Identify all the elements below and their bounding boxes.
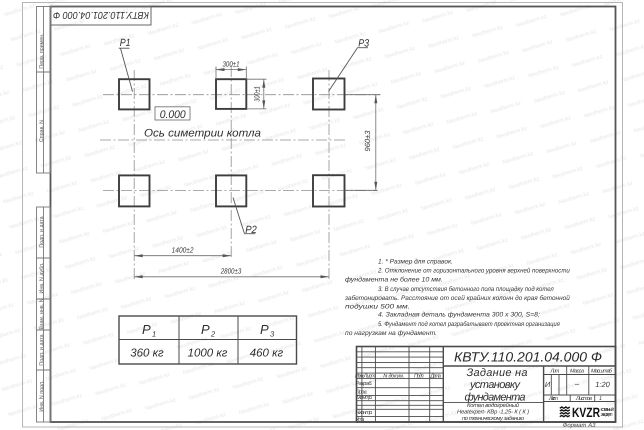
svg-text:0.000: 0.000 xyxy=(160,109,187,121)
svg-text:1400±2: 1400±2 xyxy=(172,245,195,254)
svg-text:Масса: Масса xyxy=(570,368,584,374)
svg-text:Справ. N: Справ. N xyxy=(39,120,45,142)
svg-text:1:20: 1:20 xyxy=(595,380,610,389)
svg-text:460 кг: 460 кг xyxy=(250,348,284,360)
svg-text:Лист: Лист xyxy=(548,396,558,402)
svg-text:Листов: Листов xyxy=(575,396,592,402)
svg-text:P: P xyxy=(260,322,269,337)
svg-text:4. Закладная деталь фундамента: 4. Закладная деталь фундамента 300 x 300… xyxy=(378,312,540,319)
svg-text:Инв. N дубл.: Инв. N дубл. xyxy=(39,263,45,294)
svg-text:подушки 500 мм.: подушки 500 мм. xyxy=(345,304,410,311)
svg-text:ЗАВОД РЭП: ЗАВОД РЭП xyxy=(601,412,613,417)
svg-text:забетонировать. Расстояние от: забетонировать. Расстояние от осей крайн… xyxy=(344,295,570,302)
svg-text:Взам. инв. N: Взам. инв. N xyxy=(39,298,45,329)
svg-text:И: И xyxy=(545,380,551,389)
svg-text:фундамента не более 10 мм.: фундамента не более 10 мм. xyxy=(345,277,443,284)
svg-text:Дата: Дата xyxy=(429,374,441,380)
svg-text:Масштаб: Масштаб xyxy=(591,367,613,374)
svg-text:Разраб.: Разраб. xyxy=(356,380,373,387)
svg-text:3. В случае отсутствия бетонно: 3. В случае отсутствия бетонного пола пл… xyxy=(378,286,554,293)
svg-text:KVZR: KVZR xyxy=(572,405,600,420)
svg-text:Подп. и дата: Подп. и дата xyxy=(39,216,45,247)
svg-text:Подп.: Подп. xyxy=(414,374,424,380)
svg-text:1000 кг: 1000 кг xyxy=(188,348,228,360)
svg-text:2. Отклонение от горизонтально: 2. Отклонение от горизонтального уровня … xyxy=(377,268,570,275)
svg-text:по техническому заданию: по техническому заданию xyxy=(462,415,525,422)
svg-text:1: 1 xyxy=(599,396,602,402)
svg-text:2: 2 xyxy=(210,330,216,339)
svg-text:5. Фундамент под котел разраба: 5. Фундамент под котел разрабатывает про… xyxy=(378,321,560,328)
svg-text:Перв. примен.: Перв. примен. xyxy=(39,33,45,68)
svg-text:Утв.: Утв. xyxy=(355,417,365,423)
svg-text:P2: P2 xyxy=(245,224,257,236)
svg-text:P1: P1 xyxy=(120,37,131,49)
svg-text:Т.контр.: Т.контр. xyxy=(356,395,373,401)
svg-text:Котел водогрейный: Котел водогрейный xyxy=(467,402,520,409)
svg-text:Формат А3: Формат А3 xyxy=(563,422,596,429)
svg-text:установку: установку xyxy=(469,379,522,391)
svg-text:1. * Размер для справок.: 1. * Размер для справок. xyxy=(378,259,453,266)
svg-text:Ось симетрии котла: Ось симетрии котла xyxy=(144,128,261,140)
svg-text:P: P xyxy=(142,322,151,337)
svg-text:360 кг: 360 кг xyxy=(130,348,164,360)
svg-text:N докум.: N докум. xyxy=(383,374,404,380)
svg-text:960±3: 960±3 xyxy=(363,130,372,152)
svg-text:Задание на: Задание на xyxy=(467,367,528,379)
svg-text:Изм.Лист: Изм.Лист xyxy=(355,374,376,380)
svg-text:P: P xyxy=(201,322,210,337)
svg-text:Подп. и дата: Подп. и дата xyxy=(39,334,45,365)
svg-text:–: – xyxy=(574,380,580,389)
svg-text:по нагрузкам на фундамент.: по нагрузкам на фундамент. xyxy=(345,330,437,337)
svg-text:1: 1 xyxy=(152,330,156,339)
svg-text:Н.контр.: Н.контр. xyxy=(356,410,373,416)
svg-text:КВТУ.110.201.04.000 Ф: КВТУ.110.201.04.000 Ф xyxy=(454,350,602,365)
svg-text:фундамента: фундамента xyxy=(465,391,526,403)
svg-text:Инв. N подл.: Инв. N подл. xyxy=(39,380,45,411)
svg-text:300±1: 300±1 xyxy=(223,60,240,69)
svg-text:Лит.: Лит. xyxy=(550,368,560,374)
svg-text:Heatexpert- КВр -1,25- К ( К ): Heatexpert- КВр -1,25- К ( К ) xyxy=(457,409,529,416)
svg-text:2800±3: 2800±3 xyxy=(220,266,242,275)
svg-text:КВТУ.110.201.04.000 Ф: КВТУ.110.201.04.000 Ф xyxy=(53,9,149,20)
svg-text:300±1: 300±1 xyxy=(253,86,262,102)
